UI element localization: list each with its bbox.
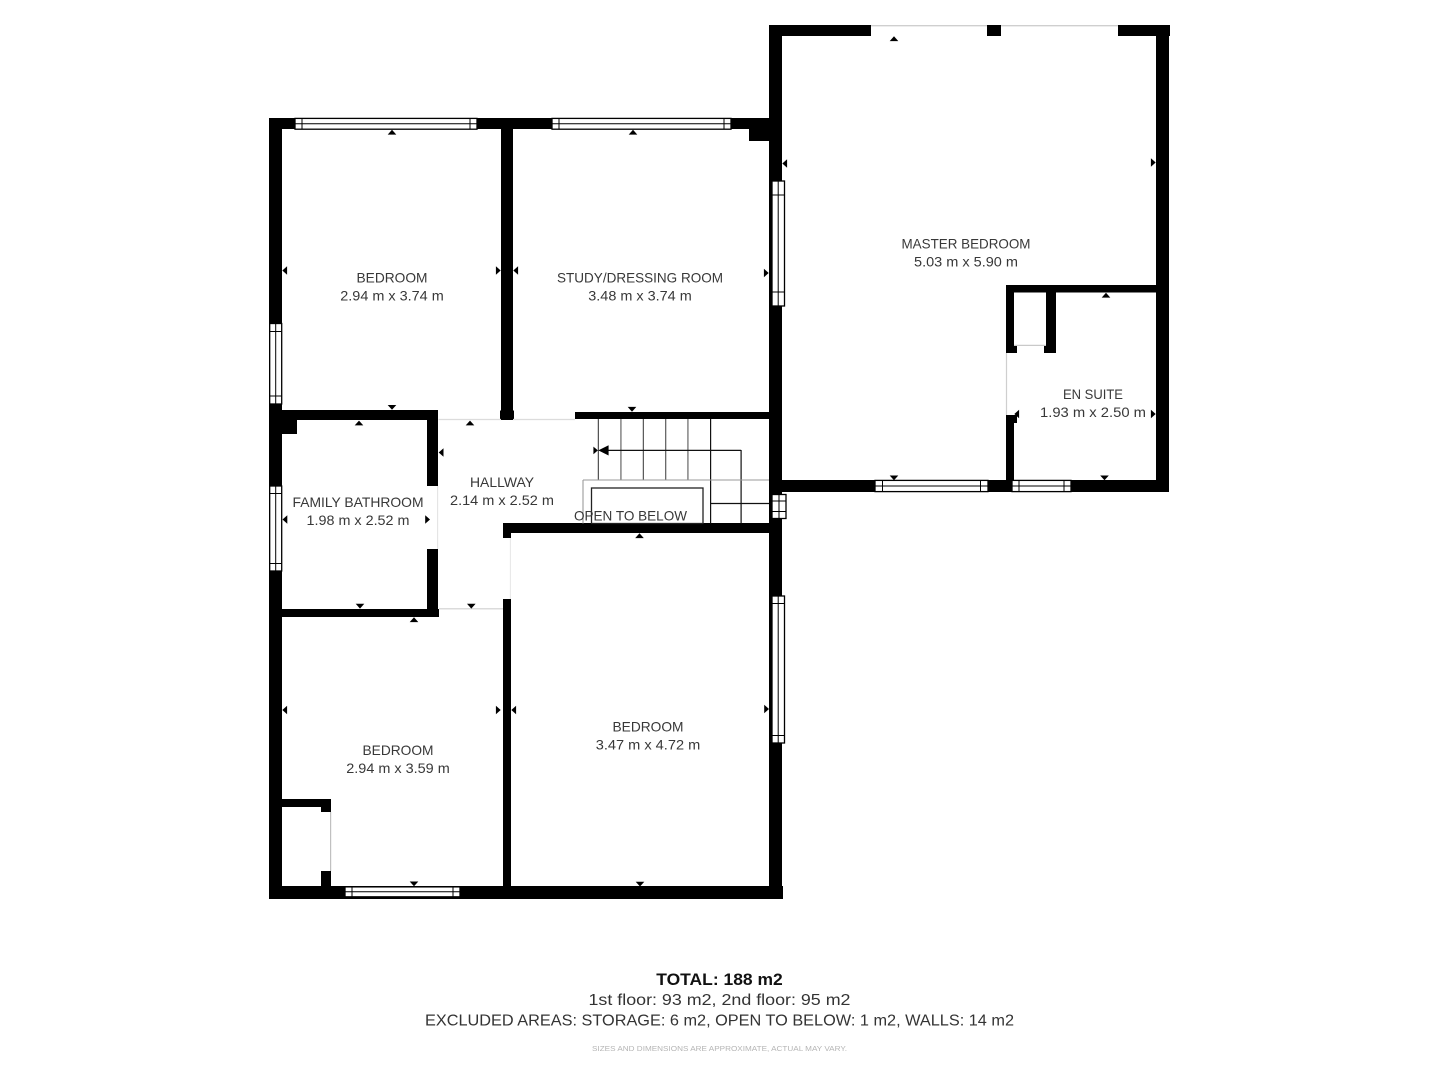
svg-text:BEDROOM: BEDROOM [363, 742, 434, 758]
svg-text:1st floor: 93 m2, 2nd floor: 9: 1st floor: 93 m2, 2nd floor: 95 m2 [589, 992, 851, 1009]
svg-text:TOTAL: 188 m2: TOTAL: 188 m2 [656, 970, 783, 989]
svg-text:2.94 m x 3.59 m: 2.94 m x 3.59 m [346, 760, 450, 776]
svg-text:5.03 m x 5.90 m: 5.03 m x 5.90 m [914, 253, 1018, 269]
svg-text:MASTER BEDROOM: MASTER BEDROOM [902, 235, 1031, 251]
svg-text:1.98 m x 2.52 m: 1.98 m x 2.52 m [307, 512, 410, 528]
svg-text:STUDY/DRESSING ROOM: STUDY/DRESSING ROOM [557, 269, 723, 285]
svg-text:EN SUITE: EN SUITE [1063, 386, 1123, 402]
svg-text:2.94 m x 3.74 m: 2.94 m x 3.74 m [340, 287, 444, 303]
svg-text:3.48 m x 3.74 m: 3.48 m x 3.74 m [588, 287, 692, 303]
svg-text:FAMILY BATHROOM: FAMILY BATHROOM [293, 494, 424, 510]
svg-text:3.47 m x 4.72 m: 3.47 m x 4.72 m [596, 736, 701, 752]
svg-text:2.14 m x 2.52 m: 2.14 m x 2.52 m [450, 492, 554, 508]
svg-text:1.93 m x 2.50 m: 1.93 m x 2.50 m [1040, 404, 1146, 420]
svg-text:HALLWAY: HALLWAY [470, 474, 535, 490]
svg-text:EXCLUDED AREAS: STORAGE: 6 m2,: EXCLUDED AREAS: STORAGE: 6 m2, OPEN TO B… [425, 1012, 1014, 1029]
svg-text:OPEN TO BELOW: OPEN TO BELOW [574, 508, 688, 524]
svg-text:BEDROOM: BEDROOM [357, 269, 428, 285]
svg-text:SIZES AND DIMENSIONS ARE APPRO: SIZES AND DIMENSIONS ARE APPROXIMATE, AC… [592, 1044, 847, 1053]
svg-text:BEDROOM: BEDROOM [613, 718, 684, 734]
